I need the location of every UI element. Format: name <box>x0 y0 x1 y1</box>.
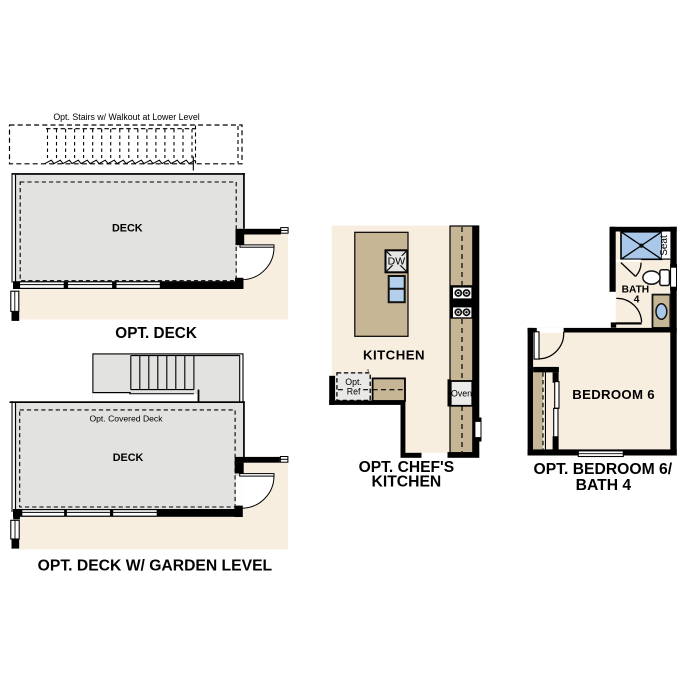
svg-text:Ref: Ref <box>347 387 361 397</box>
svg-text:OPT. DECK W/ GARDEN LEVEL: OPT. DECK W/ GARDEN LEVEL <box>38 557 273 574</box>
svg-text:2: 2 <box>367 370 370 376</box>
svg-text:4: 4 <box>634 295 640 306</box>
svg-text:OPT. DECK: OPT. DECK <box>115 325 197 342</box>
svg-text:Opt. Stairs w/ Walkout at Lowe: Opt. Stairs w/ Walkout at Lower Level <box>53 112 199 122</box>
svg-text:DW: DW <box>388 255 406 267</box>
svg-text:BEDROOM 6: BEDROOM 6 <box>572 387 655 402</box>
svg-text:Seat: Seat <box>659 235 670 256</box>
svg-text:DECK: DECK <box>112 222 143 234</box>
svg-text:KITCHEN: KITCHEN <box>363 348 425 363</box>
svg-text:Oven: Oven <box>451 388 472 398</box>
svg-text:BATH 4: BATH 4 <box>576 477 632 494</box>
svg-text:DECK: DECK <box>113 452 144 464</box>
svg-text:KITCHEN: KITCHEN <box>372 473 442 490</box>
svg-text:Opt.: Opt. <box>345 377 362 387</box>
svg-text:OPT. BEDROOM 6/: OPT. BEDROOM 6/ <box>534 461 673 478</box>
svg-text:Opt. Covered Deck: Opt. Covered Deck <box>89 413 163 423</box>
